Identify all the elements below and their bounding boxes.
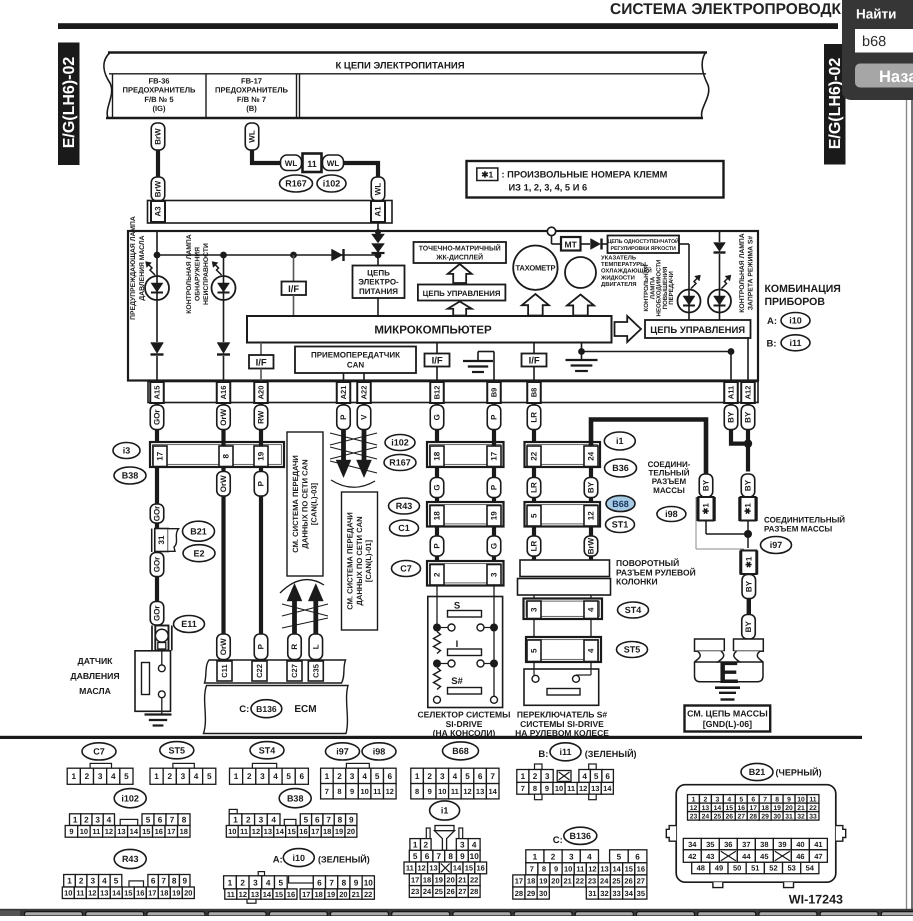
- svg-text:7: 7: [490, 772, 495, 781]
- svg-text:OrW: OrW: [219, 475, 228, 492]
- svg-text:C7: C7: [93, 747, 105, 757]
- svg-text:4: 4: [453, 772, 458, 781]
- svg-text:F/B № 7: F/B № 7: [237, 95, 266, 104]
- svg-text:ЭЛЕКТРО-: ЭЛЕКТРО-: [358, 278, 399, 287]
- svg-text:i3: i3: [123, 446, 131, 456]
- svg-text:35: 35: [706, 840, 714, 849]
- svg-text:11: 11: [373, 787, 381, 796]
- svg-text:12: 12: [252, 827, 260, 836]
- svg-text:(ЗЕЛЕНЫЙ): (ЗЕЛЕНЫЙ): [318, 854, 370, 865]
- svg-text:3: 3: [253, 878, 258, 887]
- svg-text:ПРЕДОХРАНИТЕЛЬ: ПРЕДОХРАНИТЕЛЬ: [215, 86, 289, 95]
- svg-text:✱1: ✱1: [744, 556, 753, 568]
- svg-text:25: 25: [435, 887, 443, 896]
- svg-text:КОНТРОЛЬНАЯ ЛАМПА: КОНТРОЛЬНАЯ ЛАМПА: [739, 233, 746, 313]
- svg-text:ДАВЛЕНИЯ: ДАВЛЕНИЯ: [70, 671, 119, 681]
- svg-text:14: 14: [276, 827, 285, 836]
- svg-text:3: 3: [490, 572, 499, 577]
- svg-text:17: 17: [490, 451, 499, 460]
- svg-text:WL: WL: [285, 159, 298, 168]
- svg-text:(ЧЕРНЫЙ): (ЧЕРНЫЙ): [776, 767, 822, 778]
- svg-text:LR: LR: [530, 540, 539, 551]
- svg-text:22: 22: [364, 890, 372, 899]
- svg-text:I/F: I/F: [288, 284, 299, 295]
- svg-text:РАЗЪЕМ МАССЫ: РАЗЪЕМ МАССЫ: [764, 525, 832, 534]
- svg-text:S#: S#: [451, 676, 463, 687]
- svg-text:3: 3: [440, 772, 445, 781]
- svg-text:МАССЫ: МАССЫ: [653, 486, 685, 495]
- svg-text:10: 10: [64, 888, 72, 897]
- svg-text:i1: i1: [616, 436, 624, 446]
- svg-text:12: 12: [239, 890, 247, 899]
- svg-text:2: 2: [551, 852, 556, 861]
- svg-text:V: V: [360, 414, 369, 420]
- svg-text:11: 11: [451, 787, 459, 796]
- svg-text:4: 4: [194, 772, 199, 781]
- svg-text:13: 13: [591, 784, 599, 793]
- svg-text:3: 3: [569, 852, 574, 861]
- svg-text:24: 24: [600, 877, 609, 886]
- svg-text:48: 48: [697, 864, 705, 873]
- svg-text:9: 9: [354, 878, 359, 887]
- svg-text:ST4: ST4: [625, 605, 642, 615]
- svg-text:i98: i98: [665, 509, 678, 519]
- svg-text:GOr: GOr: [153, 605, 162, 621]
- svg-text:31: 31: [157, 535, 166, 544]
- svg-text:ЖК-ДИСПЛЕЙ: ЖК-ДИСПЛЕЙ: [435, 253, 483, 262]
- svg-text:2: 2: [167, 772, 172, 781]
- svg-text:17: 17: [167, 827, 175, 836]
- svg-text:4: 4: [271, 816, 276, 825]
- svg-text:G: G: [433, 484, 442, 490]
- svg-text:9: 9: [69, 827, 73, 836]
- svg-text:(ЗЕЛЕНЫЙ): (ЗЕЛЕНЫЙ): [585, 748, 637, 759]
- svg-text:(IG): (IG): [152, 104, 166, 113]
- svg-text:3: 3: [715, 796, 719, 803]
- svg-text:11: 11: [92, 827, 100, 836]
- svg-text:B21: B21: [749, 767, 766, 777]
- svg-text:i11: i11: [559, 747, 571, 757]
- svg-text:5: 5: [530, 513, 539, 518]
- svg-text:BY: BY: [744, 411, 753, 423]
- svg-text:38: 38: [760, 840, 768, 849]
- svg-text:BY: BY: [702, 479, 711, 491]
- svg-text:7: 7: [763, 796, 767, 803]
- svg-text:44: 44: [742, 852, 751, 861]
- svg-text:9: 9: [787, 796, 791, 803]
- svg-text:4: 4: [582, 772, 587, 781]
- svg-text:9: 9: [349, 816, 354, 825]
- svg-text:G: G: [490, 543, 499, 549]
- svg-text:5: 5: [530, 648, 539, 653]
- svg-text:C:: C:: [553, 835, 563, 846]
- svg-text:5: 5: [124, 772, 129, 781]
- svg-text:C35: C35: [311, 664, 320, 678]
- svg-text:45: 45: [760, 852, 768, 861]
- svg-text:19: 19: [539, 877, 547, 886]
- svg-text:C27: C27: [290, 664, 299, 678]
- svg-text:19: 19: [435, 875, 443, 884]
- svg-text:BY: BY: [744, 621, 753, 633]
- svg-text:GOr: GOr: [153, 506, 162, 522]
- svg-text:13: 13: [117, 827, 125, 836]
- svg-text:A16: A16: [219, 386, 228, 400]
- svg-text:P: P: [257, 480, 266, 486]
- svg-text:27: 27: [458, 887, 466, 896]
- svg-text:18: 18: [180, 827, 188, 836]
- svg-text:ИЗ 1, 2, 3, 4, 5 И 6: ИЗ 1, 2, 3, 4, 5 И 6: [509, 183, 588, 193]
- svg-text:11: 11: [567, 784, 575, 793]
- svg-text:B9: B9: [490, 388, 499, 398]
- svg-text:A12: A12: [744, 386, 753, 400]
- svg-text:26: 26: [624, 877, 632, 886]
- svg-text:14: 14: [263, 890, 272, 899]
- svg-text:2: 2: [533, 772, 538, 781]
- svg-text:18: 18: [160, 888, 168, 897]
- svg-text:5: 5: [465, 772, 470, 781]
- svg-text:2: 2: [427, 772, 432, 781]
- svg-text:26: 26: [446, 887, 454, 896]
- svg-text:6: 6: [478, 772, 483, 781]
- svg-text:2: 2: [247, 772, 252, 781]
- svg-text:F/B № 5: F/B № 5: [144, 95, 174, 104]
- svg-text:E/G(LH6)-02: E/G(LH6)-02: [61, 57, 78, 149]
- svg-text:BY: BY: [587, 481, 596, 493]
- svg-text:E2: E2: [193, 548, 204, 558]
- svg-text:22: 22: [809, 805, 817, 812]
- svg-text:1: 1: [71, 772, 76, 781]
- svg-text:A15: A15: [153, 386, 162, 400]
- svg-text:17: 17: [515, 877, 523, 886]
- svg-text:A11: A11: [727, 386, 736, 399]
- svg-text:30: 30: [539, 889, 547, 898]
- svg-text:14: 14: [112, 888, 121, 897]
- svg-text:20: 20: [339, 890, 347, 899]
- svg-text:7: 7: [325, 787, 329, 796]
- svg-text:ST5: ST5: [169, 745, 186, 755]
- svg-text:13: 13: [702, 805, 710, 812]
- svg-text:31: 31: [785, 813, 793, 820]
- svg-text:7: 7: [326, 816, 331, 825]
- svg-text:ТЕЛЬНЫЙ: ТЕЛЬНЫЙ: [649, 468, 690, 478]
- svg-text:36: 36: [724, 840, 732, 849]
- svg-text:18: 18: [433, 451, 442, 460]
- svg-text:FB-36: FB-36: [148, 77, 169, 86]
- svg-text:8: 8: [415, 787, 419, 796]
- svg-text:i10: i10: [789, 316, 802, 326]
- svg-text:ST4: ST4: [259, 745, 276, 755]
- svg-text:4: 4: [587, 852, 592, 861]
- svg-text:6: 6: [635, 852, 640, 861]
- svg-text:19: 19: [773, 805, 781, 812]
- svg-text:53: 53: [787, 864, 795, 873]
- svg-text:4: 4: [102, 877, 107, 886]
- svg-text:5: 5: [375, 772, 380, 781]
- svg-text:32: 32: [600, 889, 608, 898]
- svg-text:FB-17: FB-17: [241, 77, 262, 86]
- svg-text:9: 9: [428, 787, 432, 796]
- svg-text:LR: LR: [530, 412, 539, 423]
- svg-text:5: 5: [207, 772, 212, 781]
- svg-text:BY: BY: [744, 580, 753, 592]
- svg-text:6: 6: [315, 816, 320, 825]
- svg-text:P: P: [339, 414, 348, 420]
- svg-text:B68: B68: [612, 499, 629, 509]
- svg-text:B136: B136: [256, 704, 277, 714]
- svg-text:B12: B12: [433, 386, 442, 400]
- svg-text:33: 33: [612, 889, 620, 898]
- svg-text:9: 9: [545, 784, 549, 793]
- svg-text:8: 8: [172, 877, 177, 886]
- svg-text:1: 1: [154, 772, 159, 781]
- svg-text:[CAN(L)-03]: [CAN(L)-03]: [310, 482, 319, 525]
- svg-text:B136: B136: [570, 831, 592, 841]
- svg-text:11: 11: [240, 827, 248, 836]
- svg-text:3: 3: [460, 840, 465, 849]
- svg-text:20: 20: [184, 888, 192, 897]
- svg-text:37: 37: [742, 840, 750, 849]
- svg-text:11: 11: [227, 890, 235, 899]
- svg-text:31: 31: [588, 889, 596, 898]
- svg-text:2: 2: [84, 816, 89, 825]
- svg-text:50: 50: [733, 864, 741, 873]
- svg-text:5: 5: [304, 816, 309, 825]
- svg-text:СОЕДИНИТЕЛЬНЫЙ: СОЕДИНИТЕЛЬНЫЙ: [764, 515, 845, 525]
- svg-text:2: 2: [240, 878, 245, 887]
- svg-text:WL: WL: [248, 130, 257, 143]
- svg-text:6: 6: [158, 816, 163, 825]
- svg-text:C11: C11: [220, 664, 229, 677]
- svg-text:I/F: I/F: [256, 358, 267, 369]
- svg-text:19: 19: [335, 827, 343, 836]
- svg-text:20: 20: [446, 875, 454, 884]
- svg-text:2: 2: [79, 877, 84, 886]
- svg-text:WL: WL: [327, 159, 340, 168]
- svg-text:МАСЛА: МАСЛА: [79, 686, 111, 696]
- svg-text:16: 16: [737, 805, 745, 812]
- svg-text:b68: b68: [862, 34, 886, 50]
- svg-text:3: 3: [260, 772, 265, 781]
- svg-text:23: 23: [411, 887, 419, 896]
- svg-text:35: 35: [637, 889, 645, 898]
- svg-text:P: P: [257, 643, 266, 649]
- svg-text:7: 7: [437, 852, 442, 861]
- svg-text:1: 1: [521, 772, 526, 781]
- svg-text:7: 7: [530, 865, 534, 874]
- svg-text:12: 12: [579, 784, 587, 793]
- svg-text:12: 12: [588, 865, 596, 874]
- svg-text:C1: C1: [398, 523, 410, 533]
- svg-text:19: 19: [257, 451, 266, 460]
- svg-text:27: 27: [637, 877, 645, 886]
- svg-text:LR: LR: [530, 482, 539, 493]
- svg-text:18: 18: [323, 827, 331, 836]
- svg-text:54: 54: [806, 864, 815, 873]
- svg-text:ДВИГАТЕЛЯ: ДВИГАТЕЛЯ: [601, 281, 637, 288]
- svg-text:ST1: ST1: [612, 520, 629, 530]
- svg-text:11: 11: [76, 888, 84, 897]
- svg-text:22: 22: [470, 875, 478, 884]
- svg-text:15: 15: [142, 827, 150, 836]
- svg-text:32: 32: [797, 813, 805, 820]
- svg-text:i11: i11: [789, 338, 801, 348]
- svg-text:2: 2: [337, 772, 342, 781]
- svg-text:19: 19: [490, 511, 499, 520]
- svg-text:8: 8: [775, 796, 779, 803]
- svg-text:16: 16: [136, 888, 144, 897]
- svg-text:14: 14: [603, 784, 612, 793]
- svg-text:i102: i102: [391, 438, 409, 448]
- svg-text:6: 6: [388, 772, 393, 781]
- svg-text:6: 6: [425, 852, 430, 861]
- svg-text:ДАТЧИК: ДАТЧИК: [78, 656, 114, 666]
- svg-text:28: 28: [515, 889, 523, 898]
- svg-text:17: 17: [749, 805, 757, 812]
- svg-text:СМ. СИСТЕМА ПЕРЕДАЧИ: СМ. СИСТЕМА ПЕРЕДАЧИ: [346, 512, 355, 610]
- svg-text:5: 5: [279, 878, 284, 887]
- svg-text:СИСТЕМА ЭЛЕКТРОПРОВОДКИ: СИСТЕМА ЭЛЕКТРОПРОВОДКИ: [610, 1, 852, 18]
- svg-text:42: 42: [688, 852, 696, 861]
- svg-text:A:: A:: [273, 855, 283, 866]
- svg-text:3: 3: [181, 772, 186, 781]
- svg-text:МИКРОКОМПЬЮТЕР: МИКРОКОМПЬЮТЕР: [374, 325, 492, 337]
- svg-text:i98: i98: [373, 747, 386, 757]
- svg-text:8: 8: [542, 865, 546, 874]
- svg-text:4: 4: [107, 816, 112, 825]
- svg-text:i10: i10: [293, 853, 306, 863]
- svg-text:40: 40: [796, 840, 804, 849]
- svg-text:17: 17: [311, 827, 319, 836]
- svg-text:52: 52: [769, 864, 777, 873]
- svg-text:4: 4: [727, 796, 731, 803]
- svg-text:46: 46: [796, 852, 804, 861]
- svg-text:4: 4: [266, 878, 271, 887]
- svg-text:C7: C7: [400, 564, 412, 574]
- svg-text:B21: B21: [190, 526, 207, 536]
- svg-text:4: 4: [111, 772, 116, 781]
- svg-text:BrW: BrW: [154, 128, 163, 145]
- svg-text:B8: B8: [530, 388, 539, 398]
- svg-text:B36: B36: [612, 463, 629, 473]
- svg-text:20: 20: [551, 877, 559, 886]
- svg-text:18: 18: [314, 890, 322, 899]
- svg-text:OrW: OrW: [219, 408, 228, 425]
- svg-text:ECM: ECM: [294, 704, 316, 715]
- svg-text:8: 8: [342, 878, 347, 887]
- svg-text:1: 1: [234, 772, 239, 781]
- svg-text:10: 10: [564, 865, 572, 874]
- svg-text:21: 21: [458, 875, 466, 884]
- svg-text:43: 43: [706, 852, 714, 861]
- svg-text:13: 13: [251, 890, 259, 899]
- svg-text:10: 10: [470, 852, 480, 861]
- svg-text:14: 14: [612, 865, 621, 874]
- svg-text:ЦЕПЬ УПРАВЛЕНИЯ: ЦЕПЬ УПРАВЛЕНИЯ: [650, 325, 745, 336]
- svg-text:22: 22: [530, 451, 539, 460]
- svg-text:10: 10: [228, 827, 236, 836]
- svg-text:15: 15: [275, 890, 283, 899]
- svg-text:BrW: BrW: [587, 537, 596, 554]
- svg-text:B:: B:: [538, 749, 548, 760]
- svg-text:СМ. ЦЕПЬ МАССЫ: СМ. ЦЕПЬ МАССЫ: [687, 709, 768, 719]
- svg-text:✱1: ✱1: [481, 170, 493, 180]
- svg-text:6: 6: [151, 877, 156, 886]
- svg-text:2: 2: [246, 816, 251, 825]
- svg-text:8: 8: [222, 453, 231, 458]
- svg-text:3: 3: [545, 772, 550, 781]
- svg-text:10: 10: [438, 787, 446, 796]
- svg-text:1: 1: [73, 816, 78, 825]
- svg-text:G: G: [433, 414, 442, 420]
- svg-text:5: 5: [739, 796, 743, 803]
- svg-text:3: 3: [259, 816, 264, 825]
- svg-text:ПРЕДОХРАНИТЕЛЬ: ПРЕДОХРАНИТЕЛЬ: [123, 86, 197, 95]
- svg-text:21: 21: [352, 890, 360, 899]
- svg-text:ДАННЫХ ПО СЕТИ CAN: ДАННЫХ ПО СЕТИ CAN: [300, 459, 309, 548]
- svg-text:13: 13: [100, 888, 108, 897]
- svg-text:[GND(L)-06]: [GND(L)-06]: [703, 719, 752, 729]
- svg-text:ЦЕПЬ: ЦЕПЬ: [367, 269, 390, 278]
- svg-text:18: 18: [423, 875, 431, 884]
- svg-text:A21: A21: [339, 386, 348, 400]
- svg-text:СМ. СИСТЕМА ПЕРЕДАЧИ: СМ. СИСТЕМА ПЕРЕДАЧИ: [291, 455, 300, 553]
- svg-text:4: 4: [587, 607, 596, 612]
- svg-text:ЦЕПЬ УПРАВЛЕНИЯ: ЦЕПЬ УПРАВЛЕНИЯ: [423, 289, 501, 298]
- svg-text:16: 16: [155, 827, 163, 836]
- svg-text:4: 4: [273, 772, 278, 781]
- svg-text:ТАХОМЕТР: ТАХОМЕТР: [515, 264, 555, 273]
- svg-text:20: 20: [347, 827, 355, 836]
- svg-text:3: 3: [530, 607, 539, 612]
- svg-text:8: 8: [533, 784, 537, 793]
- svg-text:18: 18: [527, 877, 535, 886]
- svg-text:49: 49: [715, 864, 723, 873]
- svg-text:17: 17: [302, 890, 310, 899]
- svg-text:15: 15: [625, 865, 633, 874]
- svg-text:15: 15: [726, 805, 734, 812]
- svg-text:i1: i1: [441, 806, 449, 816]
- svg-text:ТОЧЕЧНО-МАТРИЧНЫЙ: ТОЧЕЧНО-МАТРИЧНЫЙ: [419, 244, 501, 253]
- svg-text:12: 12: [386, 787, 394, 796]
- svg-text:НЕИСПРАВНОСТИ: НЕИСПРАВНОСТИ: [203, 243, 210, 305]
- svg-text:6: 6: [317, 878, 322, 887]
- svg-text:B:: B:: [767, 339, 777, 350]
- svg-text:1: 1: [233, 816, 238, 825]
- svg-text:11: 11: [307, 159, 317, 169]
- svg-text:WL: WL: [374, 183, 383, 196]
- svg-text:16: 16: [477, 864, 485, 873]
- svg-text:22: 22: [576, 877, 584, 886]
- svg-text:GOr: GOr: [153, 409, 162, 425]
- svg-text:19: 19: [327, 890, 335, 899]
- svg-text:4: 4: [362, 772, 367, 781]
- svg-text:(В): (В): [246, 104, 257, 113]
- svg-text:CAN: CAN: [347, 361, 365, 370]
- svg-text:ЗАПРЕТА РЕЖИМА S#: ЗАПРЕТА РЕЖИМА S#: [748, 236, 755, 311]
- svg-text:26: 26: [726, 813, 734, 820]
- svg-text:E11: E11: [181, 619, 197, 629]
- svg-text:17: 17: [411, 875, 419, 884]
- svg-text:10: 10: [80, 827, 88, 836]
- svg-text:8: 8: [448, 852, 453, 861]
- svg-text:15: 15: [124, 888, 132, 897]
- svg-text:7: 7: [329, 878, 334, 887]
- svg-text:B68: B68: [452, 746, 469, 756]
- svg-text:2: 2: [424, 840, 429, 849]
- svg-text:ПРЕДУПРЕЖДАЮЩАЯ ЛАМПА: ПРЕДУПРЕЖДАЮЩАЯ ЛАМПА: [130, 216, 137, 320]
- svg-text:10: 10: [364, 878, 374, 887]
- svg-text:RW: RW: [257, 410, 266, 424]
